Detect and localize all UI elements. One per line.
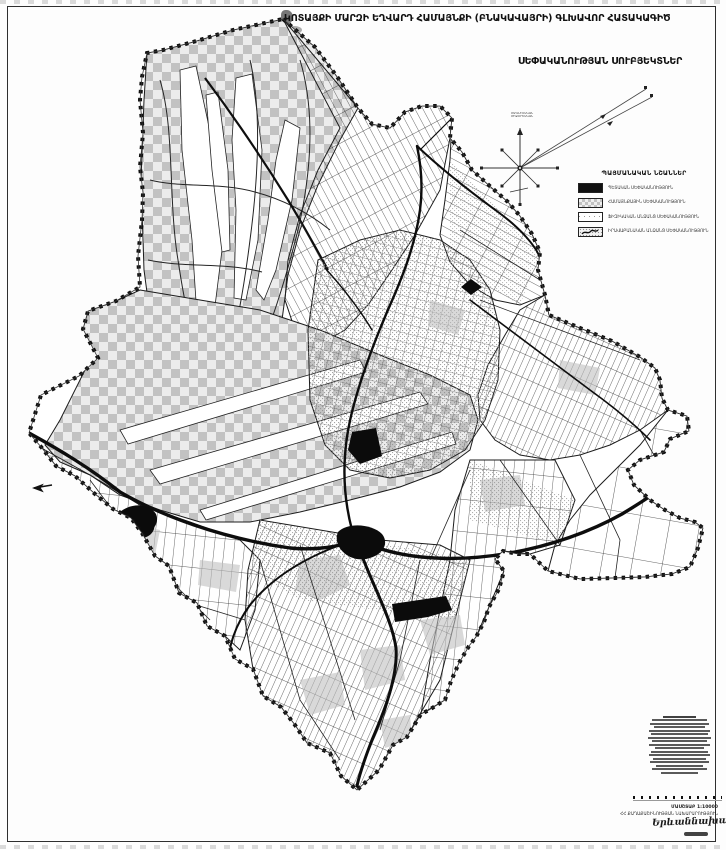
legend-item-legal-entities: ԻՐԱՎԱԲԱՆԱԿԱՆ ԱՆՁԱՆՑ ՍԵՓԱԿԱՆՈՒԹՅՈՒՆ — [578, 227, 710, 237]
notes-text-block — [648, 716, 711, 775]
signature-stamp-smudge — [684, 832, 708, 836]
swatch-solid-black — [578, 183, 603, 193]
scale-label: ՄԱՍՇՏԱԲ 1:10000 — [671, 805, 718, 810]
legend: ՊԱՅՄԱՆԱԿԱՆ ՆՇԱՆՆԵՐ ՊԵՏԱԿԱՆ ՍԵՓԱԿԱՆՈՒԹՅՈՒ… — [578, 170, 710, 241]
scale-bar-line — [633, 800, 722, 801]
map-body — [0, 0, 726, 850]
legend-item-citizens: ՖԻԶԻԿԱԿԱՆ ԱՆՁԱՆՑ ՍԵՓԱԿԱՆՈՒԹՅՈՒՆ — [578, 212, 710, 222]
road-exit-arrow — [34, 485, 52, 491]
legend-item-state: ՊԵՏԱԿԱՆ ՍԵՓԱԿԱՆՈՒԹՅՈՒՆ — [578, 183, 710, 193]
legend-title: ՊԱՅՄԱՆԱԿԱՆ ՆՇԱՆՆԵՐ — [578, 170, 710, 177]
legend-item-community: ՀԱՄԱՅՆՔԱՅԻՆ ՍԵՓԱԿԱՆՈՒԹՅՈՒՆ — [578, 198, 710, 208]
scale-bar — [633, 796, 722, 799]
swatch-checker-gray — [578, 198, 603, 208]
cadastral-map — [0, 0, 726, 850]
scanned-map-page: { "page": { "title": "ԿՈՏԱՅՔԻ ՄԱՐԶԻ ԵՂՎԱ… — [0, 0, 726, 850]
compass-label: ՄԱԳՆԻՍԱԿԱՆ ՄԻՋՕՐԵԱԿԱՆ — [500, 112, 544, 119]
swatch-white — [578, 212, 603, 222]
swatch-stipple — [578, 227, 603, 237]
scribble-icon — [580, 228, 600, 236]
